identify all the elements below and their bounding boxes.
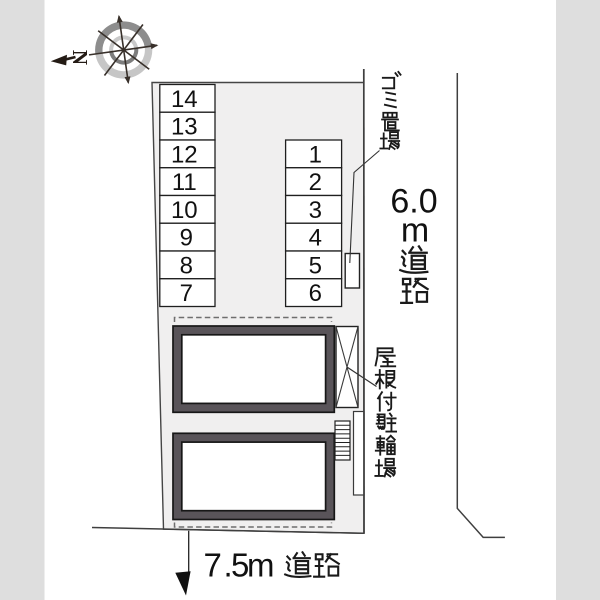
svg-text:1: 1 [309,142,322,169]
svg-text:6: 6 [309,280,322,307]
svg-text:2: 2 [309,169,322,196]
svg-text:12: 12 [171,142,198,169]
svg-text:m: m [247,547,275,584]
svg-text:11: 11 [172,169,197,196]
svg-text:7: 7 [204,547,222,584]
svg-text:13: 13 [171,114,198,141]
svg-text:10: 10 [171,197,198,224]
svg-text:9: 9 [180,225,193,252]
svg-text:N: N [68,50,92,65]
svg-text:5: 5 [309,253,322,280]
svg-text:7: 7 [180,280,193,307]
svg-text:14: 14 [171,86,198,113]
svg-text:m: m [401,212,429,250]
svg-text:8: 8 [180,253,193,280]
svg-text:3: 3 [309,197,322,224]
svg-text:4: 4 [309,225,322,252]
